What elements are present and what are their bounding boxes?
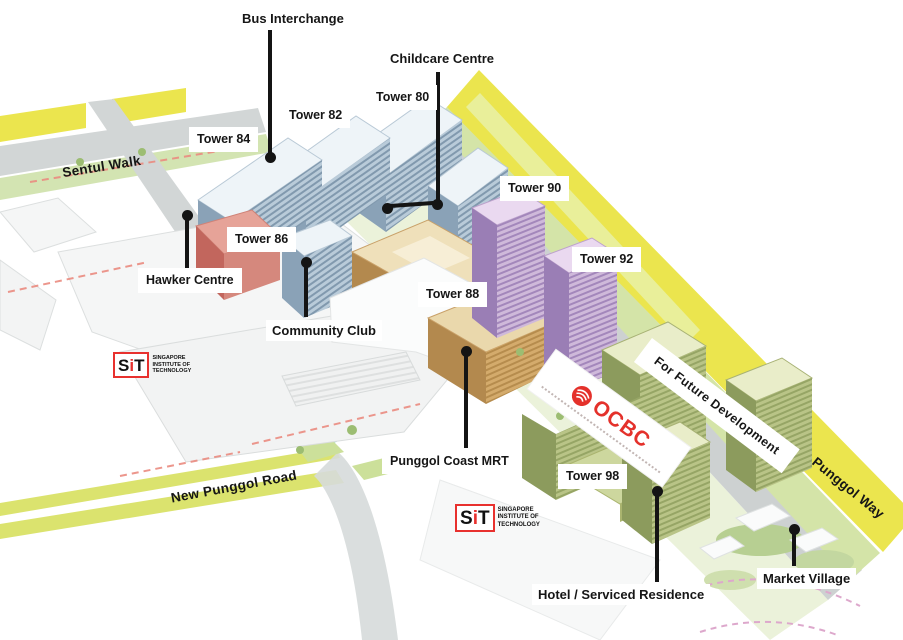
sit-logo-campus: SiT SINGAPOREINSTITUTE OFTECHNOLOGY (113, 352, 191, 378)
label-tower-84: Tower 84 (189, 127, 258, 152)
sit-acronym: SiT (455, 504, 495, 532)
label-hotel-serviced-residence: Hotel / Serviced Residence (532, 584, 710, 605)
pointer-punggol-coast-mrt (464, 354, 468, 448)
pointer-dot-childcare (382, 203, 393, 214)
label-market-village: Market Village (757, 568, 856, 589)
sit-acronym: SiT (113, 352, 149, 378)
pointer-community-club (304, 265, 308, 317)
pointer-bus-interchange (268, 30, 272, 158)
label-community-club: Community Club (266, 320, 382, 341)
label-tower-98: Tower 98 (558, 464, 627, 489)
label-bus-interchange: Bus Interchange (236, 8, 350, 29)
label-tower-92: Tower 92 (572, 247, 641, 272)
label-hawker-centre: Hawker Centre (138, 268, 242, 293)
pointer-dot-bus-interchange (265, 152, 276, 163)
label-tower-88: Tower 88 (418, 282, 487, 307)
label-tower-80: Tower 80 (368, 85, 437, 110)
sit-wordmark: SINGAPOREINSTITUTE OFTECHNOLOGY (152, 355, 191, 375)
sit-wordmark: SINGAPOREINSTITUTE OFTECHNOLOGY (498, 507, 540, 529)
label-childcare-centre: Childcare Centre (384, 48, 500, 69)
map-illustration (0, 0, 903, 640)
label-tower-86: Tower 86 (227, 227, 296, 252)
sit-logo-south: SiT SINGAPOREINSTITUTE OFTECHNOLOGY (455, 504, 540, 532)
pointer-hawker-centre (185, 218, 189, 268)
pointer-hotel (655, 494, 659, 582)
pointer-market-village (792, 532, 796, 566)
punggol-district-site-map: For Future Development OCBC SiT SINGAPOR… (0, 0, 903, 640)
label-tower-82: Tower 82 (281, 103, 350, 128)
label-tower-90: Tower 90 (500, 176, 569, 201)
label-punggol-coast-mrt: Punggol Coast MRT (382, 449, 517, 474)
